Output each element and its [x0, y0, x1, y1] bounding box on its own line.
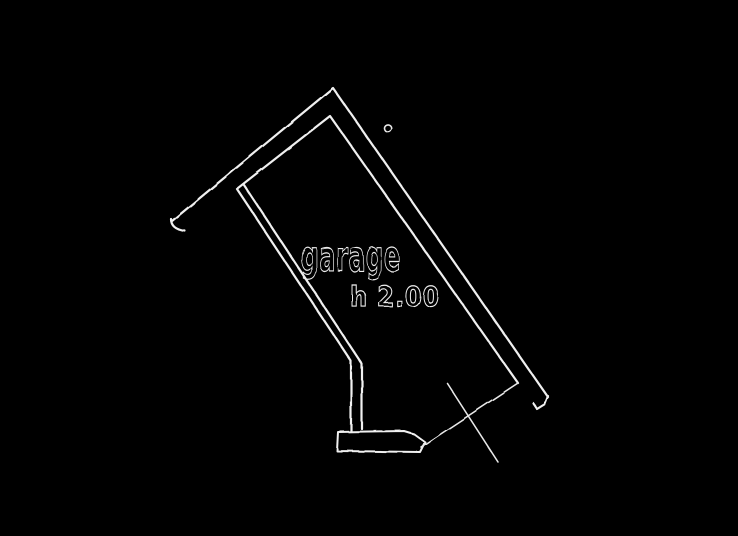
- height-label: h 2.00: [350, 280, 440, 313]
- door-swing-cross-line: [447, 383, 498, 462]
- door-leaf-line: [421, 383, 518, 447]
- room-label: garage: [301, 232, 401, 281]
- outer-wall-right-end-cap: [533, 396, 548, 409]
- interior-wall-inner-face-line: [244, 185, 362, 429]
- floorplan-drawing: garage h 2.00: [0, 0, 738, 536]
- marker-dot-icon: [384, 124, 391, 131]
- floorplan-canvas: garage h 2.00: [0, 0, 738, 536]
- threshold-step: [337, 431, 425, 452]
- interior-wall-outer-face-line: [237, 189, 351, 433]
